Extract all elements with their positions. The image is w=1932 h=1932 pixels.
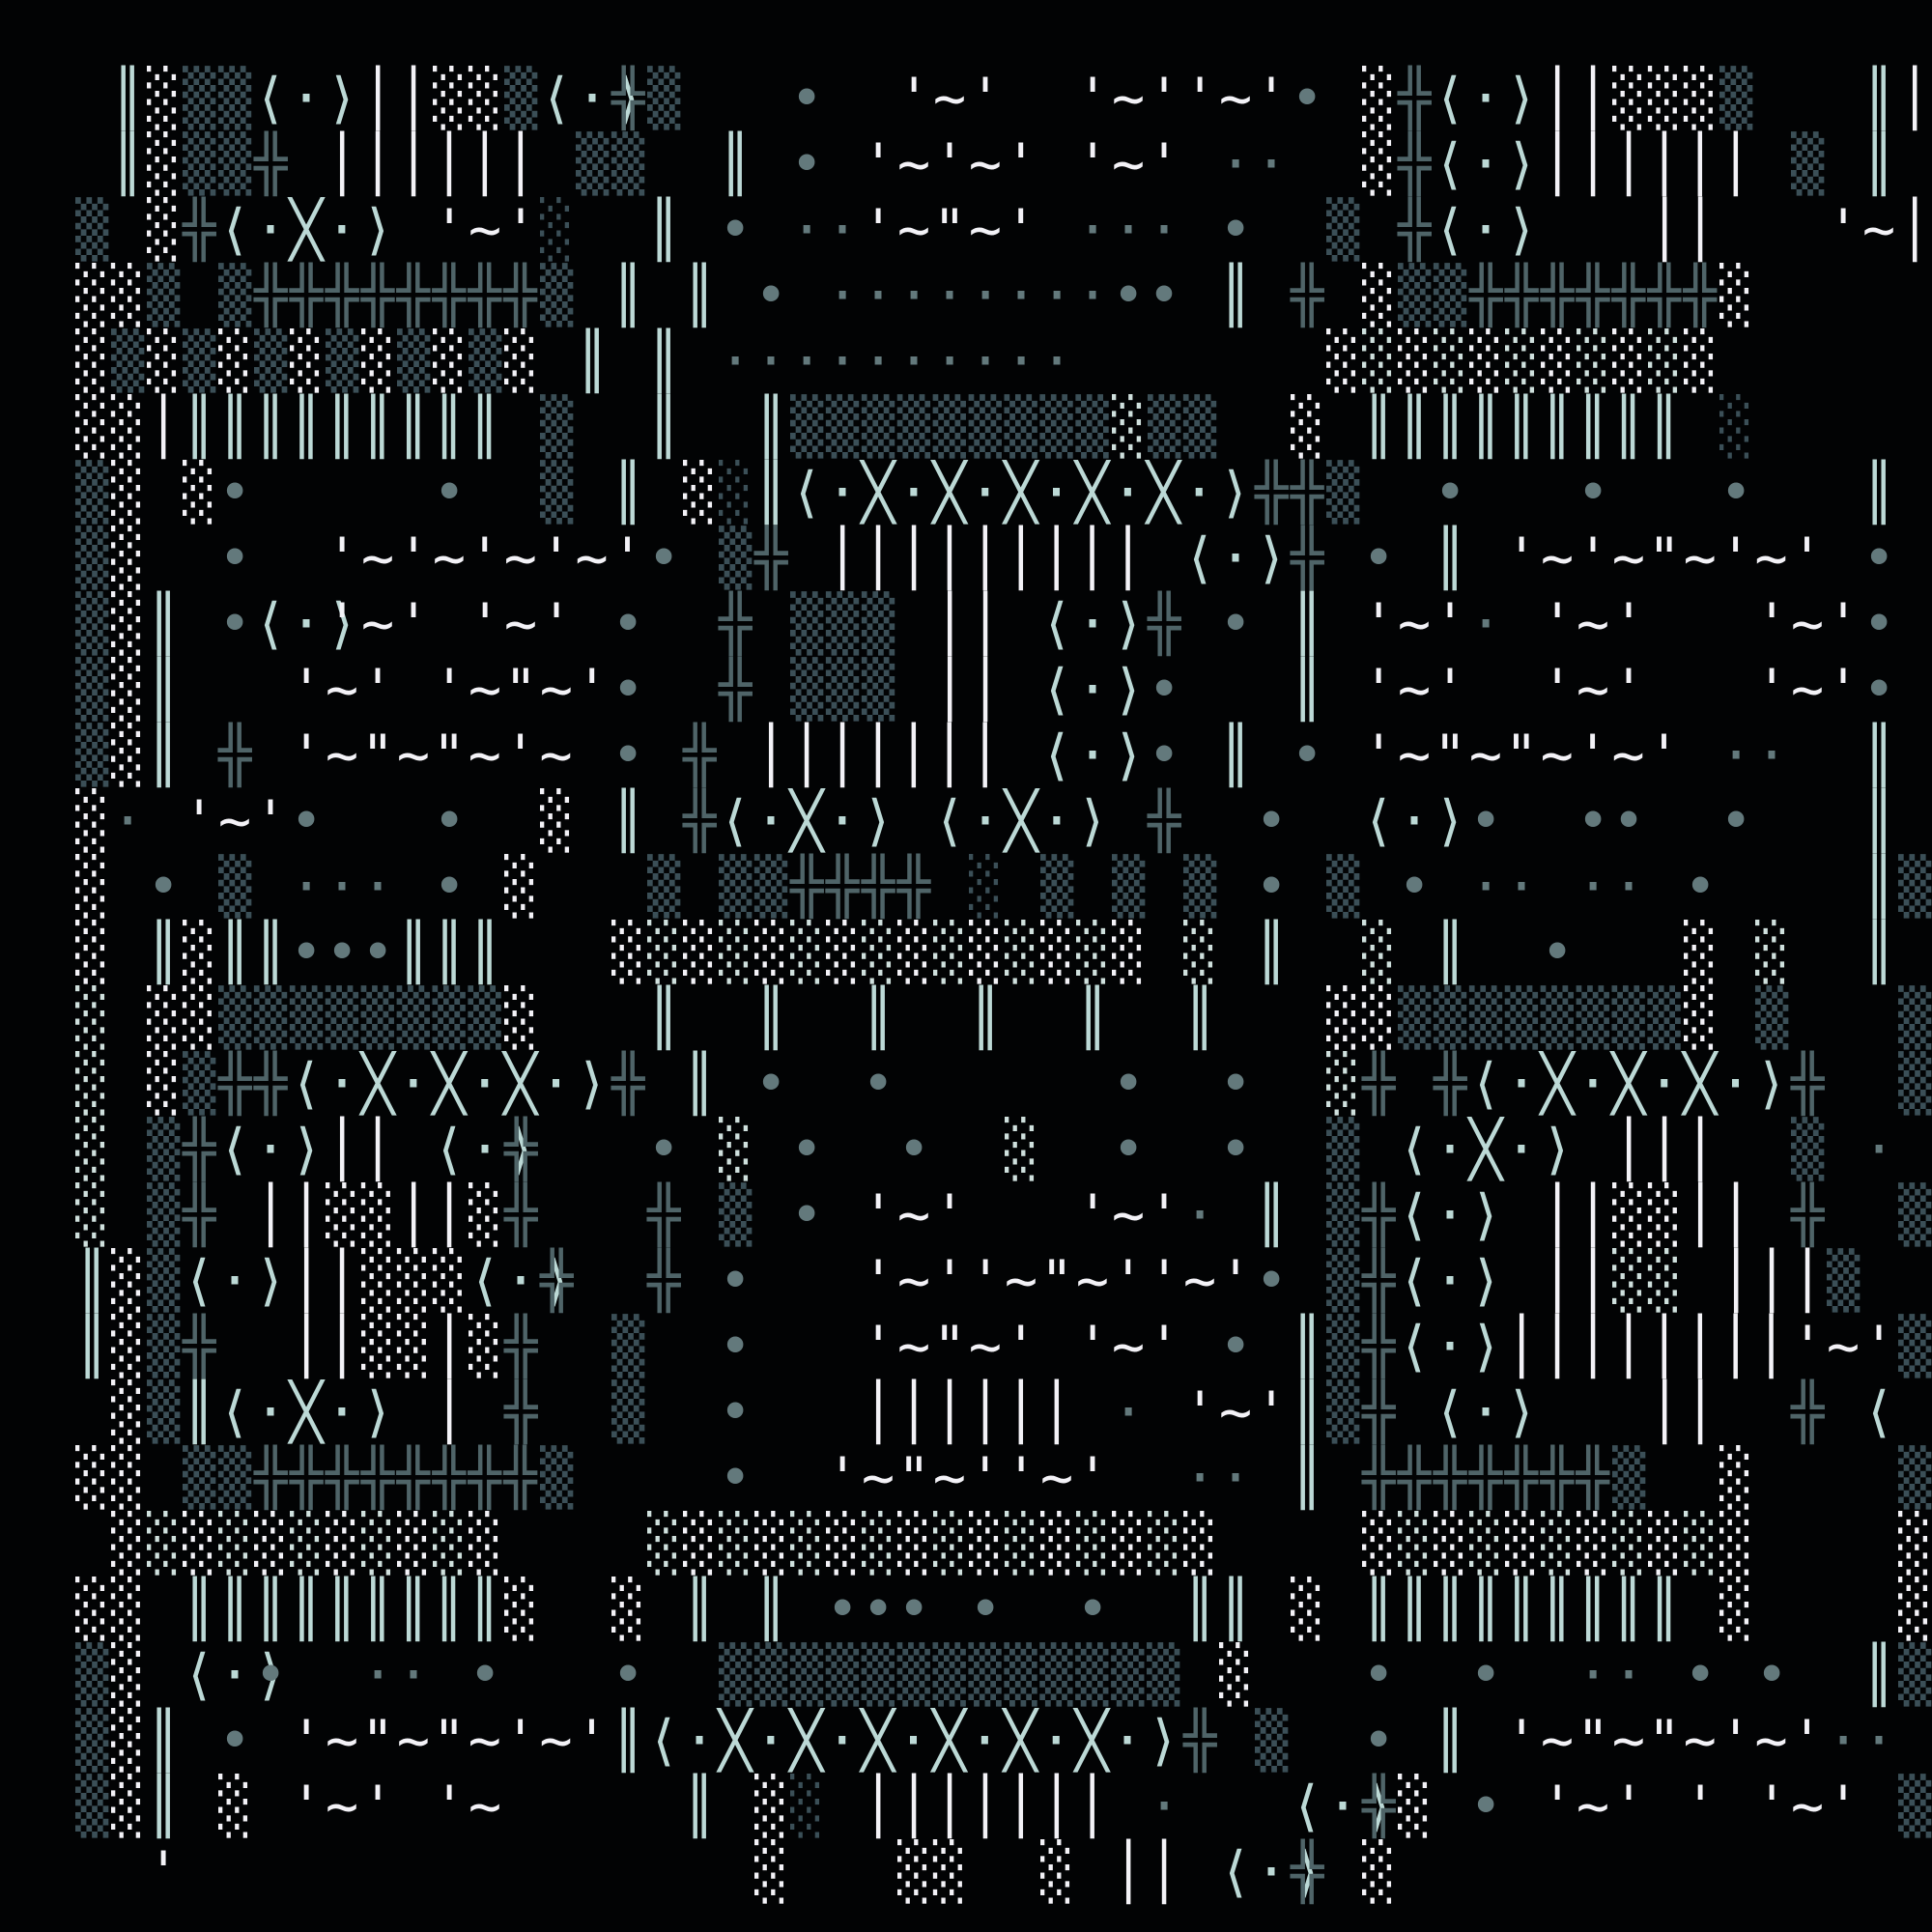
art-glyph-run: ░ bbox=[1326, 1051, 1362, 1117]
art-glyph-run: '~' bbox=[1755, 657, 1862, 723]
art-glyph-run: ░ bbox=[183, 460, 218, 526]
art-glyph-run: ░ bbox=[1005, 920, 1040, 985]
art-glyph-run: ║ bbox=[1076, 985, 1112, 1051]
art-glyph-run: ▒ bbox=[75, 460, 111, 526]
art-glyph-run: '~'~'~'~' bbox=[326, 526, 646, 591]
art-glyph-run: │ bbox=[147, 394, 183, 460]
art-glyph-run: ╬ bbox=[647, 1182, 683, 1248]
art-glyph-run: ░ bbox=[75, 985, 111, 1051]
art-glyph-run: ║ bbox=[683, 1774, 719, 1839]
art-glyph-run: ║ bbox=[147, 657, 183, 723]
art-glyph-run: '~' bbox=[1791, 1314, 1898, 1379]
art-glyph-run: ║ bbox=[1862, 920, 1898, 985]
art-glyph-run: ▒ bbox=[1791, 131, 1827, 197]
art-glyph-run: ▒ bbox=[147, 1314, 183, 1379]
art-glyph-run: ░ bbox=[897, 1511, 933, 1577]
art-glyph-run: • bbox=[1255, 1248, 1291, 1314]
art-glyph-run: ▒ bbox=[540, 460, 576, 526]
art-glyph-run: ║ bbox=[647, 394, 683, 460]
art-glyph-run: • bbox=[1862, 657, 1898, 723]
art-glyph-run: • bbox=[719, 1379, 754, 1445]
art-glyph-run: ║ bbox=[147, 591, 183, 657]
art-glyph-run: ░ bbox=[754, 1839, 790, 1905]
art-glyph-run: '~' bbox=[183, 788, 290, 854]
art-glyph-run: ╬ bbox=[647, 1248, 683, 1314]
art-glyph-run: • bbox=[1112, 1051, 1148, 1117]
art-glyph-run: '~ bbox=[1827, 197, 1898, 263]
art-glyph-run: ░ bbox=[1040, 1839, 1076, 1905]
art-glyph-run: ║ bbox=[969, 985, 1005, 1051]
art-glyph-run: ░ bbox=[790, 1511, 826, 1577]
art-glyph-run: ▒▒▒▒▒▒▒▒ bbox=[218, 985, 503, 1051]
art-glyph-run: ░░░ bbox=[1612, 66, 1719, 131]
art-glyph-run: • bbox=[1362, 1642, 1398, 1708]
art-glyph-run: ░░ bbox=[1612, 1182, 1684, 1248]
art-glyph-run: • bbox=[218, 526, 254, 591]
art-glyph-run: ░ bbox=[75, 1117, 111, 1182]
ascii-art-canvas: ║░▒▒⟨·⟩││░░▒⟨·⟩╬▒•'~''~''~'•░╬⟨·⟩││░░░▒║… bbox=[0, 0, 1932, 1932]
art-glyph-run: ░ bbox=[290, 1511, 326, 1577]
art-glyph-run: ░ bbox=[1719, 263, 1755, 328]
art-glyph-run: ░ bbox=[326, 1511, 361, 1577]
art-glyph-run: ░ bbox=[1005, 1117, 1040, 1182]
art-glyph-run: ║ bbox=[647, 985, 683, 1051]
art-glyph-run: • bbox=[218, 591, 254, 657]
art-glyph-run: │ bbox=[433, 1379, 469, 1445]
art-glyph-run: ⟨·╳·⟩ bbox=[719, 788, 897, 854]
art-glyph-run: ⟨·⟩ bbox=[1362, 788, 1469, 854]
art-glyph-run: ░ bbox=[933, 920, 969, 985]
art-glyph-run: • bbox=[254, 1642, 290, 1708]
art-glyph-run: ││ bbox=[361, 66, 433, 131]
art-glyph-run: ░ bbox=[1684, 1511, 1719, 1577]
art-glyph-run: ▒ bbox=[1326, 460, 1362, 526]
art-glyph-run: ▒ bbox=[647, 854, 683, 920]
art-glyph-run: ░ bbox=[1398, 328, 1434, 394]
art-glyph-run: ░ bbox=[75, 1051, 111, 1117]
art-glyph-run: ▒ bbox=[1827, 1248, 1862, 1314]
art-glyph-run: │││ bbox=[1719, 1248, 1827, 1314]
art-glyph-run: ║ bbox=[754, 460, 790, 526]
art-glyph-run: • bbox=[1577, 460, 1612, 526]
art-glyph-run: ▒ bbox=[1326, 1182, 1362, 1248]
art-glyph-run: • bbox=[433, 854, 469, 920]
art-glyph-run: '~"~' bbox=[826, 1445, 1005, 1511]
art-glyph-run: ║ bbox=[611, 460, 647, 526]
art-glyph-run: ▒▒▒▒▒▒▒▒▒▒▒▒▒ bbox=[719, 1642, 1182, 1708]
art-glyph-run: ⟨·⟩ bbox=[183, 1248, 290, 1314]
art-glyph-run: ╬ bbox=[1398, 131, 1434, 197]
art-glyph-run: • bbox=[1755, 1642, 1791, 1708]
art-glyph-run: ░ bbox=[969, 1511, 1005, 1577]
art-glyph-run: ▒▒ bbox=[183, 131, 254, 197]
art-glyph-run: '~' bbox=[897, 66, 1005, 131]
art-glyph-run: ░ bbox=[504, 985, 540, 1051]
art-glyph-run: '~' bbox=[862, 1248, 969, 1314]
art-glyph-run: '~' bbox=[1755, 1774, 1862, 1839]
art-glyph-run: ·· bbox=[826, 263, 897, 328]
screen: { "meta": { "title": "generative-ascii-t… bbox=[0, 0, 1932, 1932]
art-glyph-run: '~' bbox=[1541, 591, 1648, 657]
art-glyph-run: • bbox=[290, 920, 326, 985]
art-glyph-run: '~"~' bbox=[969, 1248, 1148, 1314]
art-glyph-run: ░ bbox=[147, 66, 183, 131]
art-glyph-run: ▒ bbox=[1898, 1314, 1932, 1379]
art-glyph-run: ░ bbox=[75, 1445, 111, 1511]
art-glyph-run: ▒ bbox=[326, 328, 361, 394]
art-glyph-run: ░ bbox=[540, 197, 576, 263]
art-glyph-run: ║ bbox=[111, 66, 147, 131]
art-glyph-run: ·· bbox=[1219, 131, 1291, 197]
art-glyph-run: '~"~"~'~' bbox=[1505, 1708, 1826, 1774]
art-glyph-run: ▒ bbox=[1326, 1117, 1362, 1182]
art-glyph-run: • bbox=[1469, 1774, 1505, 1839]
art-glyph-run: ░ bbox=[1541, 1511, 1577, 1577]
art-glyph-run: ║ bbox=[147, 723, 183, 788]
art-glyph-run: ▒▒ bbox=[719, 854, 790, 920]
art-glyph-run: ░ bbox=[683, 1511, 719, 1577]
art-glyph-run: ║ bbox=[1434, 1708, 1469, 1774]
art-glyph-run: • bbox=[790, 66, 826, 131]
art-glyph-run: • bbox=[790, 1182, 826, 1248]
art-glyph-run: •• bbox=[1112, 263, 1183, 328]
art-glyph-run: ╬ bbox=[504, 1314, 540, 1379]
art-glyph-run: ╬╬╬╬╬╬╬ bbox=[1362, 1445, 1611, 1511]
art-glyph-run: ░ bbox=[147, 1051, 183, 1117]
art-glyph-run: ║ bbox=[1862, 1642, 1898, 1708]
art-glyph-run: ░ bbox=[1505, 328, 1541, 394]
art-glyph-run: ░ bbox=[504, 1577, 540, 1642]
art-glyph-run: • bbox=[719, 1445, 754, 1511]
art-glyph-run: '~' bbox=[1183, 1379, 1291, 1445]
art-glyph-run: ▒ bbox=[1040, 854, 1076, 920]
art-glyph-run: │││││││││ bbox=[826, 526, 1147, 591]
art-glyph-run: ▒▒▒ bbox=[790, 591, 897, 657]
art-glyph-run: ╬ bbox=[504, 1182, 540, 1248]
art-glyph-run: ▒ bbox=[1112, 854, 1148, 920]
art-glyph-run: ▒ bbox=[147, 263, 183, 328]
art-glyph-run: • bbox=[1219, 1051, 1255, 1117]
art-glyph-run: ░ bbox=[111, 1708, 147, 1774]
art-glyph-run: ╬ bbox=[1183, 1708, 1219, 1774]
art-glyph-run: ⟨·╳·╳·╳·╳·╳·╳·⟩ bbox=[647, 1708, 1182, 1774]
art-glyph-run: ║ bbox=[1183, 985, 1219, 1051]
art-glyph-run: ││ bbox=[1648, 1379, 1719, 1445]
art-glyph-run: • bbox=[1541, 920, 1577, 985]
art-glyph-run: • bbox=[611, 723, 647, 788]
art-glyph-run: • bbox=[361, 920, 397, 985]
art-glyph-run: ░ bbox=[1434, 1511, 1469, 1577]
art-glyph-run: ╬╬╬╬╬╬╬╬ bbox=[254, 263, 539, 328]
art-glyph-run: ▒ bbox=[218, 854, 254, 920]
art-glyph-run: ░ bbox=[361, 328, 397, 394]
art-glyph-run: ││ bbox=[1541, 66, 1612, 131]
art-glyph-run: ▒ bbox=[111, 328, 147, 394]
art-glyph-run: ░ bbox=[75, 920, 111, 985]
art-glyph-run: ║ bbox=[1862, 788, 1898, 854]
art-glyph-run: • bbox=[1291, 723, 1326, 788]
art-glyph-run: ╬╬ bbox=[218, 1051, 290, 1117]
art-glyph-run: ╬ bbox=[1362, 1774, 1398, 1839]
art-glyph-run: ░ bbox=[1684, 328, 1719, 394]
art-glyph-run: • bbox=[719, 197, 754, 263]
art-glyph-run: ░ bbox=[969, 920, 1005, 985]
art-glyph-run: ░ bbox=[1326, 328, 1362, 394]
art-glyph-run: ▒ bbox=[1612, 1445, 1648, 1511]
art-glyph-run: ▒ bbox=[540, 1445, 576, 1511]
art-glyph-run: ▒ bbox=[1326, 1379, 1362, 1445]
art-glyph-run: • bbox=[1362, 526, 1398, 591]
art-glyph-run: ··· bbox=[290, 854, 397, 920]
art-glyph-run: ▒ bbox=[1326, 1248, 1362, 1314]
art-glyph-run: ░ bbox=[1898, 1511, 1932, 1577]
art-glyph-run: ░ bbox=[147, 328, 183, 394]
art-glyph-run: ░░ bbox=[1326, 985, 1398, 1051]
art-glyph-run: ││ bbox=[1648, 197, 1719, 263]
art-glyph-run: ·· bbox=[361, 1642, 433, 1708]
art-glyph-run: ⟨·⟩ bbox=[218, 1117, 326, 1182]
art-glyph-run: ╬╬╬╬╬╬╬ bbox=[1469, 263, 1719, 328]
art-glyph-run: • bbox=[1862, 591, 1898, 657]
art-glyph-run: ▒ bbox=[1755, 985, 1791, 1051]
art-glyph-run: · bbox=[1469, 591, 1505, 657]
art-glyph-run: ▒ bbox=[75, 657, 111, 723]
art-glyph-run: '~' bbox=[1183, 66, 1291, 131]
art-glyph-run: • bbox=[790, 131, 826, 197]
art-glyph-run: ░ bbox=[1541, 328, 1577, 394]
art-glyph-run: • bbox=[754, 1051, 790, 1117]
art-glyph-run: • bbox=[1255, 788, 1291, 854]
art-glyph-run: • bbox=[1719, 788, 1755, 854]
art-glyph-run: ║║║║║║║║║ bbox=[183, 1577, 503, 1642]
art-glyph-run: ║ bbox=[683, 263, 719, 328]
art-glyph-run: ║ bbox=[576, 328, 611, 394]
art-glyph-run: ╬╬ bbox=[1255, 460, 1326, 526]
art-glyph-run: ▒ bbox=[75, 1774, 111, 1839]
art-glyph-run: ▒ bbox=[1791, 1117, 1827, 1182]
art-glyph-run: ░ bbox=[969, 854, 1005, 920]
art-glyph-run: ╬ bbox=[183, 1182, 218, 1248]
art-glyph-run: • bbox=[1362, 1708, 1398, 1774]
art-glyph-run: ╬╬╬╬╬╬╬╬ bbox=[254, 1445, 539, 1511]
art-glyph-run: ║ bbox=[1434, 526, 1469, 591]
art-glyph-run: ░ bbox=[433, 1511, 469, 1577]
art-glyph-run: ║ bbox=[683, 1577, 719, 1642]
art-glyph-run: ▒▒ bbox=[576, 131, 647, 197]
art-glyph-run: ░ bbox=[719, 1117, 754, 1182]
art-glyph-run: ╬ bbox=[183, 1117, 218, 1182]
art-glyph-run: ▒ bbox=[183, 1051, 218, 1117]
art-glyph-run: ░ bbox=[1362, 131, 1398, 197]
art-glyph-run: ╬ bbox=[1362, 1182, 1398, 1248]
art-glyph-run: ░ bbox=[862, 920, 897, 985]
art-glyph-run: ▒ bbox=[1326, 854, 1362, 920]
art-glyph-run: '~' bbox=[326, 591, 433, 657]
art-glyph-run: ▒ bbox=[75, 723, 111, 788]
art-glyph-run: ▒ bbox=[147, 1182, 183, 1248]
art-glyph-run: • bbox=[290, 788, 326, 854]
art-glyph-run: ║ bbox=[611, 788, 647, 854]
art-glyph-run: ░ bbox=[719, 920, 754, 985]
art-glyph-run: ⟨·⟩ bbox=[1040, 591, 1148, 657]
art-glyph-run: ░ bbox=[111, 1445, 147, 1511]
art-glyph-run: ▒ bbox=[75, 197, 111, 263]
art-glyph-run: ││││││ bbox=[326, 131, 540, 197]
art-glyph-run: ││ bbox=[397, 1182, 469, 1248]
art-glyph-run: • bbox=[1291, 66, 1326, 131]
art-glyph-run: ░ bbox=[754, 920, 790, 985]
art-glyph-run: • bbox=[1684, 1642, 1719, 1708]
art-glyph-run: ⟨·⟩ bbox=[1434, 131, 1541, 197]
art-glyph-run: ││ bbox=[1541, 1182, 1612, 1248]
art-glyph-run: ╬ bbox=[1362, 1051, 1398, 1117]
art-glyph-run: ░ bbox=[1148, 1511, 1183, 1577]
art-glyph-run: ▒ bbox=[1255, 1708, 1291, 1774]
art-glyph-run: ░ bbox=[290, 328, 326, 394]
art-glyph-run: │││││││ bbox=[862, 1774, 1111, 1839]
art-glyph-run: ││││││││ bbox=[1505, 1314, 1790, 1379]
art-glyph-run: • bbox=[1684, 854, 1719, 920]
art-glyph-run: ░ bbox=[111, 1379, 147, 1445]
art-glyph-run: ░ bbox=[1112, 920, 1148, 985]
art-glyph-run: ░ bbox=[683, 920, 719, 985]
art-glyph-run: ░ bbox=[469, 1182, 504, 1248]
art-glyph-run: ▒ bbox=[75, 1708, 111, 1774]
art-glyph-run: ' bbox=[147, 1839, 183, 1905]
art-glyph-run: ⟨·╳·⟩ bbox=[218, 197, 397, 263]
art-glyph-run: │││ bbox=[1612, 1117, 1719, 1182]
art-glyph-run: ░░ bbox=[897, 1839, 969, 1905]
art-glyph-run: ░ bbox=[1076, 1511, 1112, 1577]
art-glyph-run: ⟨·⟩ bbox=[1398, 1314, 1505, 1379]
art-glyph-run: ░ bbox=[1362, 328, 1398, 394]
art-glyph-run: • bbox=[647, 1117, 683, 1182]
art-glyph-run: ░ bbox=[147, 1511, 183, 1577]
art-glyph-run: ░░ bbox=[75, 1577, 147, 1642]
art-glyph-run: • bbox=[1148, 723, 1183, 788]
art-glyph-run: ░ bbox=[111, 657, 147, 723]
art-glyph-run: ░ bbox=[433, 328, 469, 394]
art-glyph-run: '~' bbox=[862, 1182, 969, 1248]
art-glyph-run: ║ bbox=[1291, 591, 1326, 657]
art-glyph-run: ╬ bbox=[1791, 1051, 1827, 1117]
art-glyph-run: ║ bbox=[1862, 66, 1898, 131]
art-glyph-run: ░ bbox=[1612, 328, 1648, 394]
art-glyph-run: ░ bbox=[1719, 1511, 1755, 1577]
art-glyph-run: │ bbox=[1898, 197, 1932, 263]
art-glyph-run: ╬ bbox=[611, 1051, 647, 1117]
art-glyph-run: '~ bbox=[433, 1774, 504, 1839]
art-glyph-run: ░ bbox=[1112, 394, 1148, 460]
art-glyph-run: ▒ bbox=[1898, 985, 1932, 1051]
art-glyph-run: '~' bbox=[1005, 1445, 1112, 1511]
art-glyph-run: ▒▒ bbox=[183, 66, 254, 131]
art-glyph-run: ░ bbox=[183, 920, 218, 985]
art-glyph-run: · bbox=[1183, 1182, 1219, 1248]
art-glyph-run: ⟨·╳·⟩ bbox=[933, 788, 1112, 854]
art-glyph-run: ▒ bbox=[504, 66, 540, 131]
art-glyph-run: ║ bbox=[647, 197, 683, 263]
art-glyph-run: ╬ bbox=[1791, 1182, 1827, 1248]
art-glyph-run: ⟨·⟩ bbox=[254, 66, 361, 131]
art-glyph-run: ▒ bbox=[75, 1642, 111, 1708]
art-glyph-run: '~' bbox=[1076, 1182, 1183, 1248]
art-glyph-run: '~'~"~'~' bbox=[1505, 526, 1826, 591]
art-glyph-run: ·· bbox=[1183, 1445, 1255, 1511]
art-glyph-run: ▒ bbox=[1719, 66, 1755, 131]
art-glyph-run: ░ bbox=[1648, 328, 1684, 394]
art-glyph-run: ░ bbox=[111, 591, 147, 657]
art-glyph-run: ░ bbox=[469, 1511, 504, 1577]
art-glyph-run: · bbox=[1862, 1117, 1898, 1182]
art-glyph-run: ·· bbox=[1827, 1708, 1898, 1774]
art-glyph-run: ░░ bbox=[433, 66, 504, 131]
art-glyph-run: ░ bbox=[183, 1511, 218, 1577]
art-glyph-run: '~"~' bbox=[862, 1314, 1040, 1379]
art-glyph-run: ╬ bbox=[1291, 526, 1326, 591]
art-glyph-run: • bbox=[1219, 197, 1255, 263]
art-glyph-run: ░ bbox=[1040, 1511, 1076, 1577]
art-glyph-run: ··· bbox=[1076, 197, 1183, 263]
art-glyph-run: ⟨ bbox=[1862, 1379, 1898, 1445]
art-glyph-run: ║ bbox=[1862, 723, 1898, 788]
art-glyph-run: ░ bbox=[826, 1511, 862, 1577]
art-glyph-run: ║ bbox=[754, 394, 790, 460]
art-glyph-run: ││ bbox=[933, 657, 1005, 723]
art-glyph-run: • bbox=[647, 526, 683, 591]
art-glyph-run: ░ bbox=[111, 1774, 147, 1839]
art-glyph-run: • bbox=[790, 1117, 826, 1182]
art-glyph-run: ║║║║║║║║║ bbox=[1362, 1577, 1683, 1642]
art-glyph-run: ░ bbox=[1434, 328, 1469, 394]
art-glyph-run: ▒ bbox=[719, 526, 754, 591]
art-glyph-run: '~' bbox=[1076, 66, 1183, 131]
art-glyph-run: ▒▒▒▒▒▒▒▒ bbox=[1398, 985, 1683, 1051]
art-glyph-run: ║ bbox=[1219, 263, 1255, 328]
art-glyph-run: ⟨·⟩ bbox=[1183, 526, 1291, 591]
art-glyph-run: ░ bbox=[111, 1248, 147, 1314]
art-glyph-run: ╬ bbox=[1148, 591, 1183, 657]
art-glyph-run: ░░░ bbox=[361, 1248, 469, 1314]
art-glyph-run: • bbox=[433, 460, 469, 526]
art-glyph-run: • bbox=[1255, 854, 1291, 920]
art-glyph-run: ░ bbox=[1684, 920, 1719, 985]
art-glyph-run: ░ bbox=[647, 1511, 683, 1577]
art-glyph-run: • bbox=[1148, 657, 1183, 723]
art-glyph-run: '~' bbox=[469, 591, 576, 657]
art-glyph-run: ·· bbox=[1469, 854, 1541, 920]
art-glyph-run: '~' bbox=[1076, 131, 1183, 197]
art-glyph-run: ░ bbox=[1719, 394, 1755, 460]
art-glyph-run: · bbox=[1148, 1774, 1183, 1839]
art-glyph-run: ║ bbox=[611, 263, 647, 328]
art-glyph-run: • bbox=[218, 1708, 254, 1774]
art-glyph-run: ║ bbox=[1291, 1379, 1326, 1445]
art-glyph-run: ╬ bbox=[504, 1379, 540, 1445]
art-glyph-run: ░ bbox=[504, 328, 540, 394]
art-glyph-run: ░ bbox=[1612, 1511, 1648, 1577]
art-glyph-run: ║ bbox=[611, 1708, 647, 1774]
art-glyph-run: ║ bbox=[647, 328, 683, 394]
art-glyph-run: ║ bbox=[1255, 920, 1291, 985]
art-glyph-run: ││ bbox=[1684, 1182, 1755, 1248]
art-glyph-run: ░ bbox=[1362, 263, 1398, 328]
art-glyph-run: ⟨·⟩ bbox=[1040, 657, 1148, 723]
art-glyph-run: ╬ bbox=[683, 788, 719, 854]
art-glyph-run: '~' bbox=[290, 657, 397, 723]
art-glyph-run: ╬ bbox=[540, 1248, 576, 1314]
art-glyph-run: ╬ bbox=[1398, 197, 1434, 263]
